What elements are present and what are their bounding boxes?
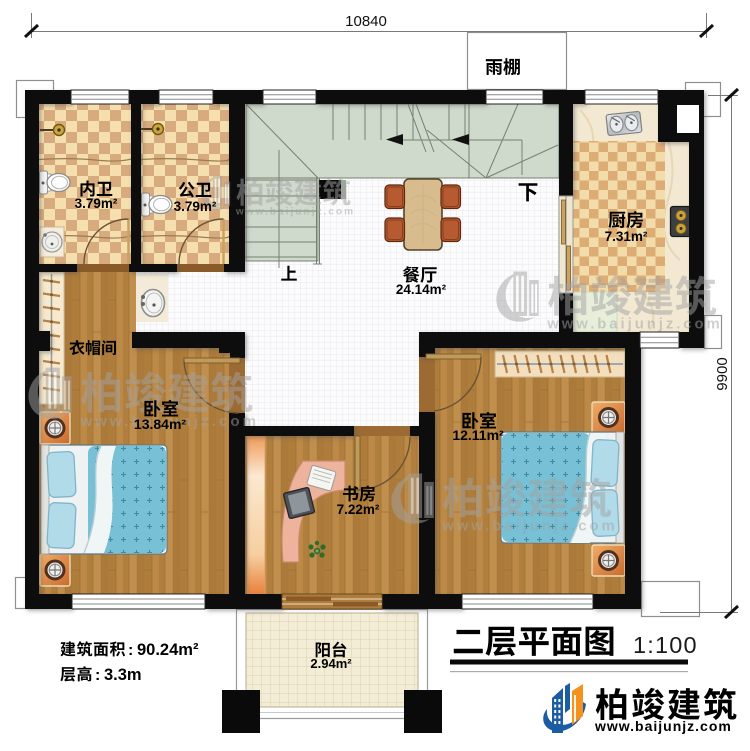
- svg-text:3.79m²: 3.79m²: [75, 196, 118, 211]
- svg-text:1:100: 1:100: [633, 632, 698, 658]
- svg-text:2.94m²: 2.94m²: [310, 656, 352, 671]
- svg-text::: :: [128, 642, 133, 659]
- svg-text:3.3m: 3.3m: [104, 666, 142, 684]
- svg-text::: :: [95, 667, 100, 684]
- svg-text:12.11m²: 12.11m²: [452, 427, 504, 443]
- svg-text:9900: 9900: [714, 357, 731, 390]
- svg-text:10840: 10840: [345, 13, 387, 30]
- svg-text:7.31m²: 7.31m²: [605, 229, 648, 244]
- svg-text:90.24m²: 90.24m²: [137, 641, 199, 659]
- svg-text:7.22m²: 7.22m²: [337, 502, 380, 517]
- svg-text:24.14m²: 24.14m²: [396, 282, 447, 297]
- svg-text:www.baijunjz.com: www.baijunjz.com: [594, 718, 732, 734]
- svg-text:3.79m²: 3.79m²: [174, 199, 217, 214]
- svg-text:13.84m²: 13.84m²: [134, 416, 186, 432]
